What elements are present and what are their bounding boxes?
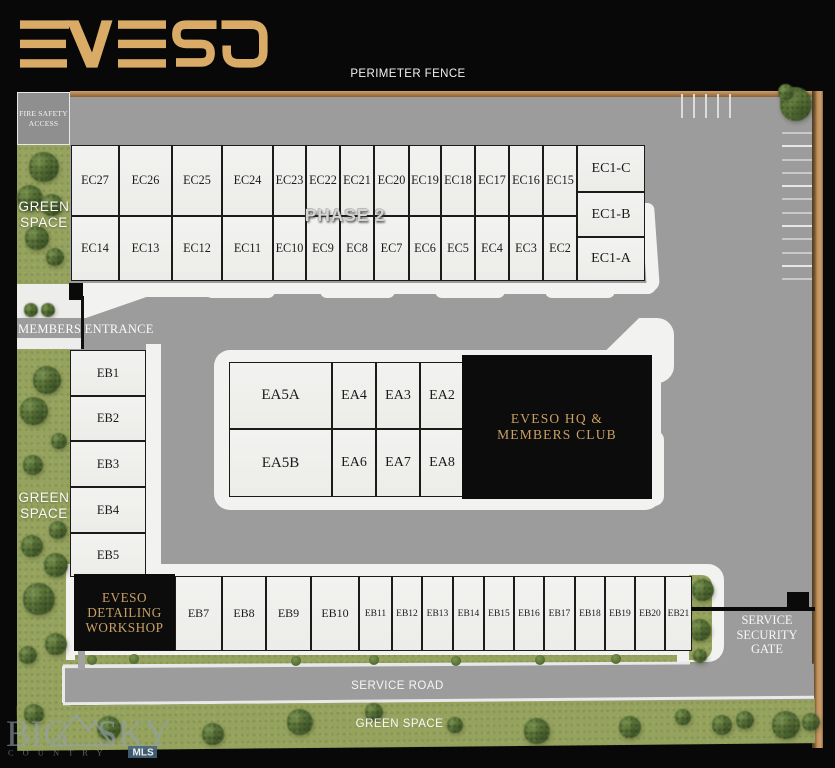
svg-text:COUNTRY: COUNTRY xyxy=(8,748,112,758)
svg-text:MLS: MLS xyxy=(133,748,154,759)
